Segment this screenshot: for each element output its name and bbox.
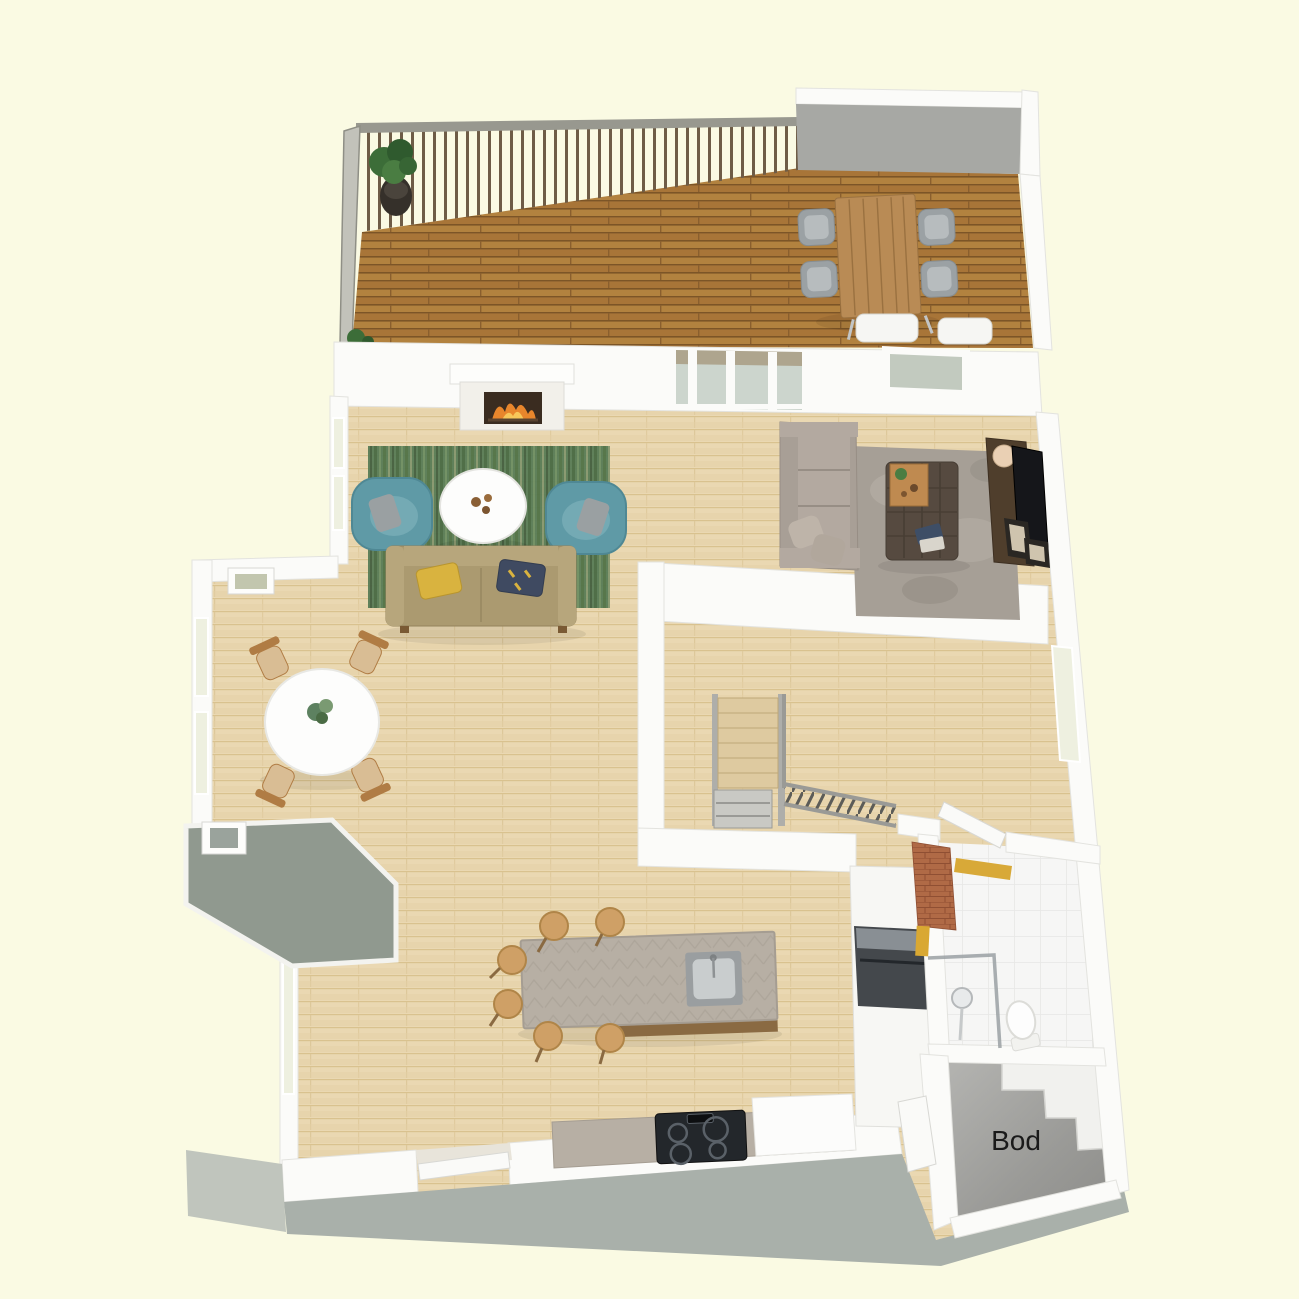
ottoman-coffee-table xyxy=(886,462,958,560)
deck-side-chair xyxy=(856,314,918,342)
skylight xyxy=(202,822,246,854)
under-stair-shelf xyxy=(714,790,772,828)
bay-window xyxy=(195,618,208,696)
window-sill-shelf xyxy=(228,568,274,594)
cooktop xyxy=(655,1110,747,1165)
adjacent-structure-shadow-face xyxy=(796,104,1025,174)
window xyxy=(333,418,344,468)
stair-steps xyxy=(718,698,778,788)
navy-pillow xyxy=(496,559,546,597)
storage-room-label: Bod xyxy=(991,1125,1041,1156)
copper-chimney xyxy=(912,842,956,930)
corner-sofa xyxy=(780,422,860,570)
lounge-deck-window xyxy=(882,346,970,398)
deck-side-chair xyxy=(938,318,992,344)
kitchen-island xyxy=(521,932,778,1041)
window xyxy=(283,950,294,1094)
shower-head xyxy=(952,988,972,1008)
dining-table xyxy=(265,669,379,775)
teal-armchair-right xyxy=(546,482,626,554)
fridge xyxy=(752,1094,856,1156)
floor-plan-canvas: Bod xyxy=(0,0,1299,1299)
wood-tray xyxy=(890,464,928,506)
teal-armchair-left xyxy=(352,478,432,550)
island-sink xyxy=(685,951,743,1007)
tan-sofa xyxy=(386,546,576,633)
wall-hall-left xyxy=(638,562,664,864)
fireplace xyxy=(450,364,574,430)
window xyxy=(333,476,344,530)
floor-plan-svg: Bod xyxy=(0,0,1299,1299)
sliding-door xyxy=(676,350,802,410)
yellow-cabinet xyxy=(915,926,930,957)
coffee-table xyxy=(440,469,526,543)
bay-window xyxy=(195,712,208,794)
media-console xyxy=(986,438,1050,568)
wall-kitchen-hall xyxy=(638,828,856,872)
